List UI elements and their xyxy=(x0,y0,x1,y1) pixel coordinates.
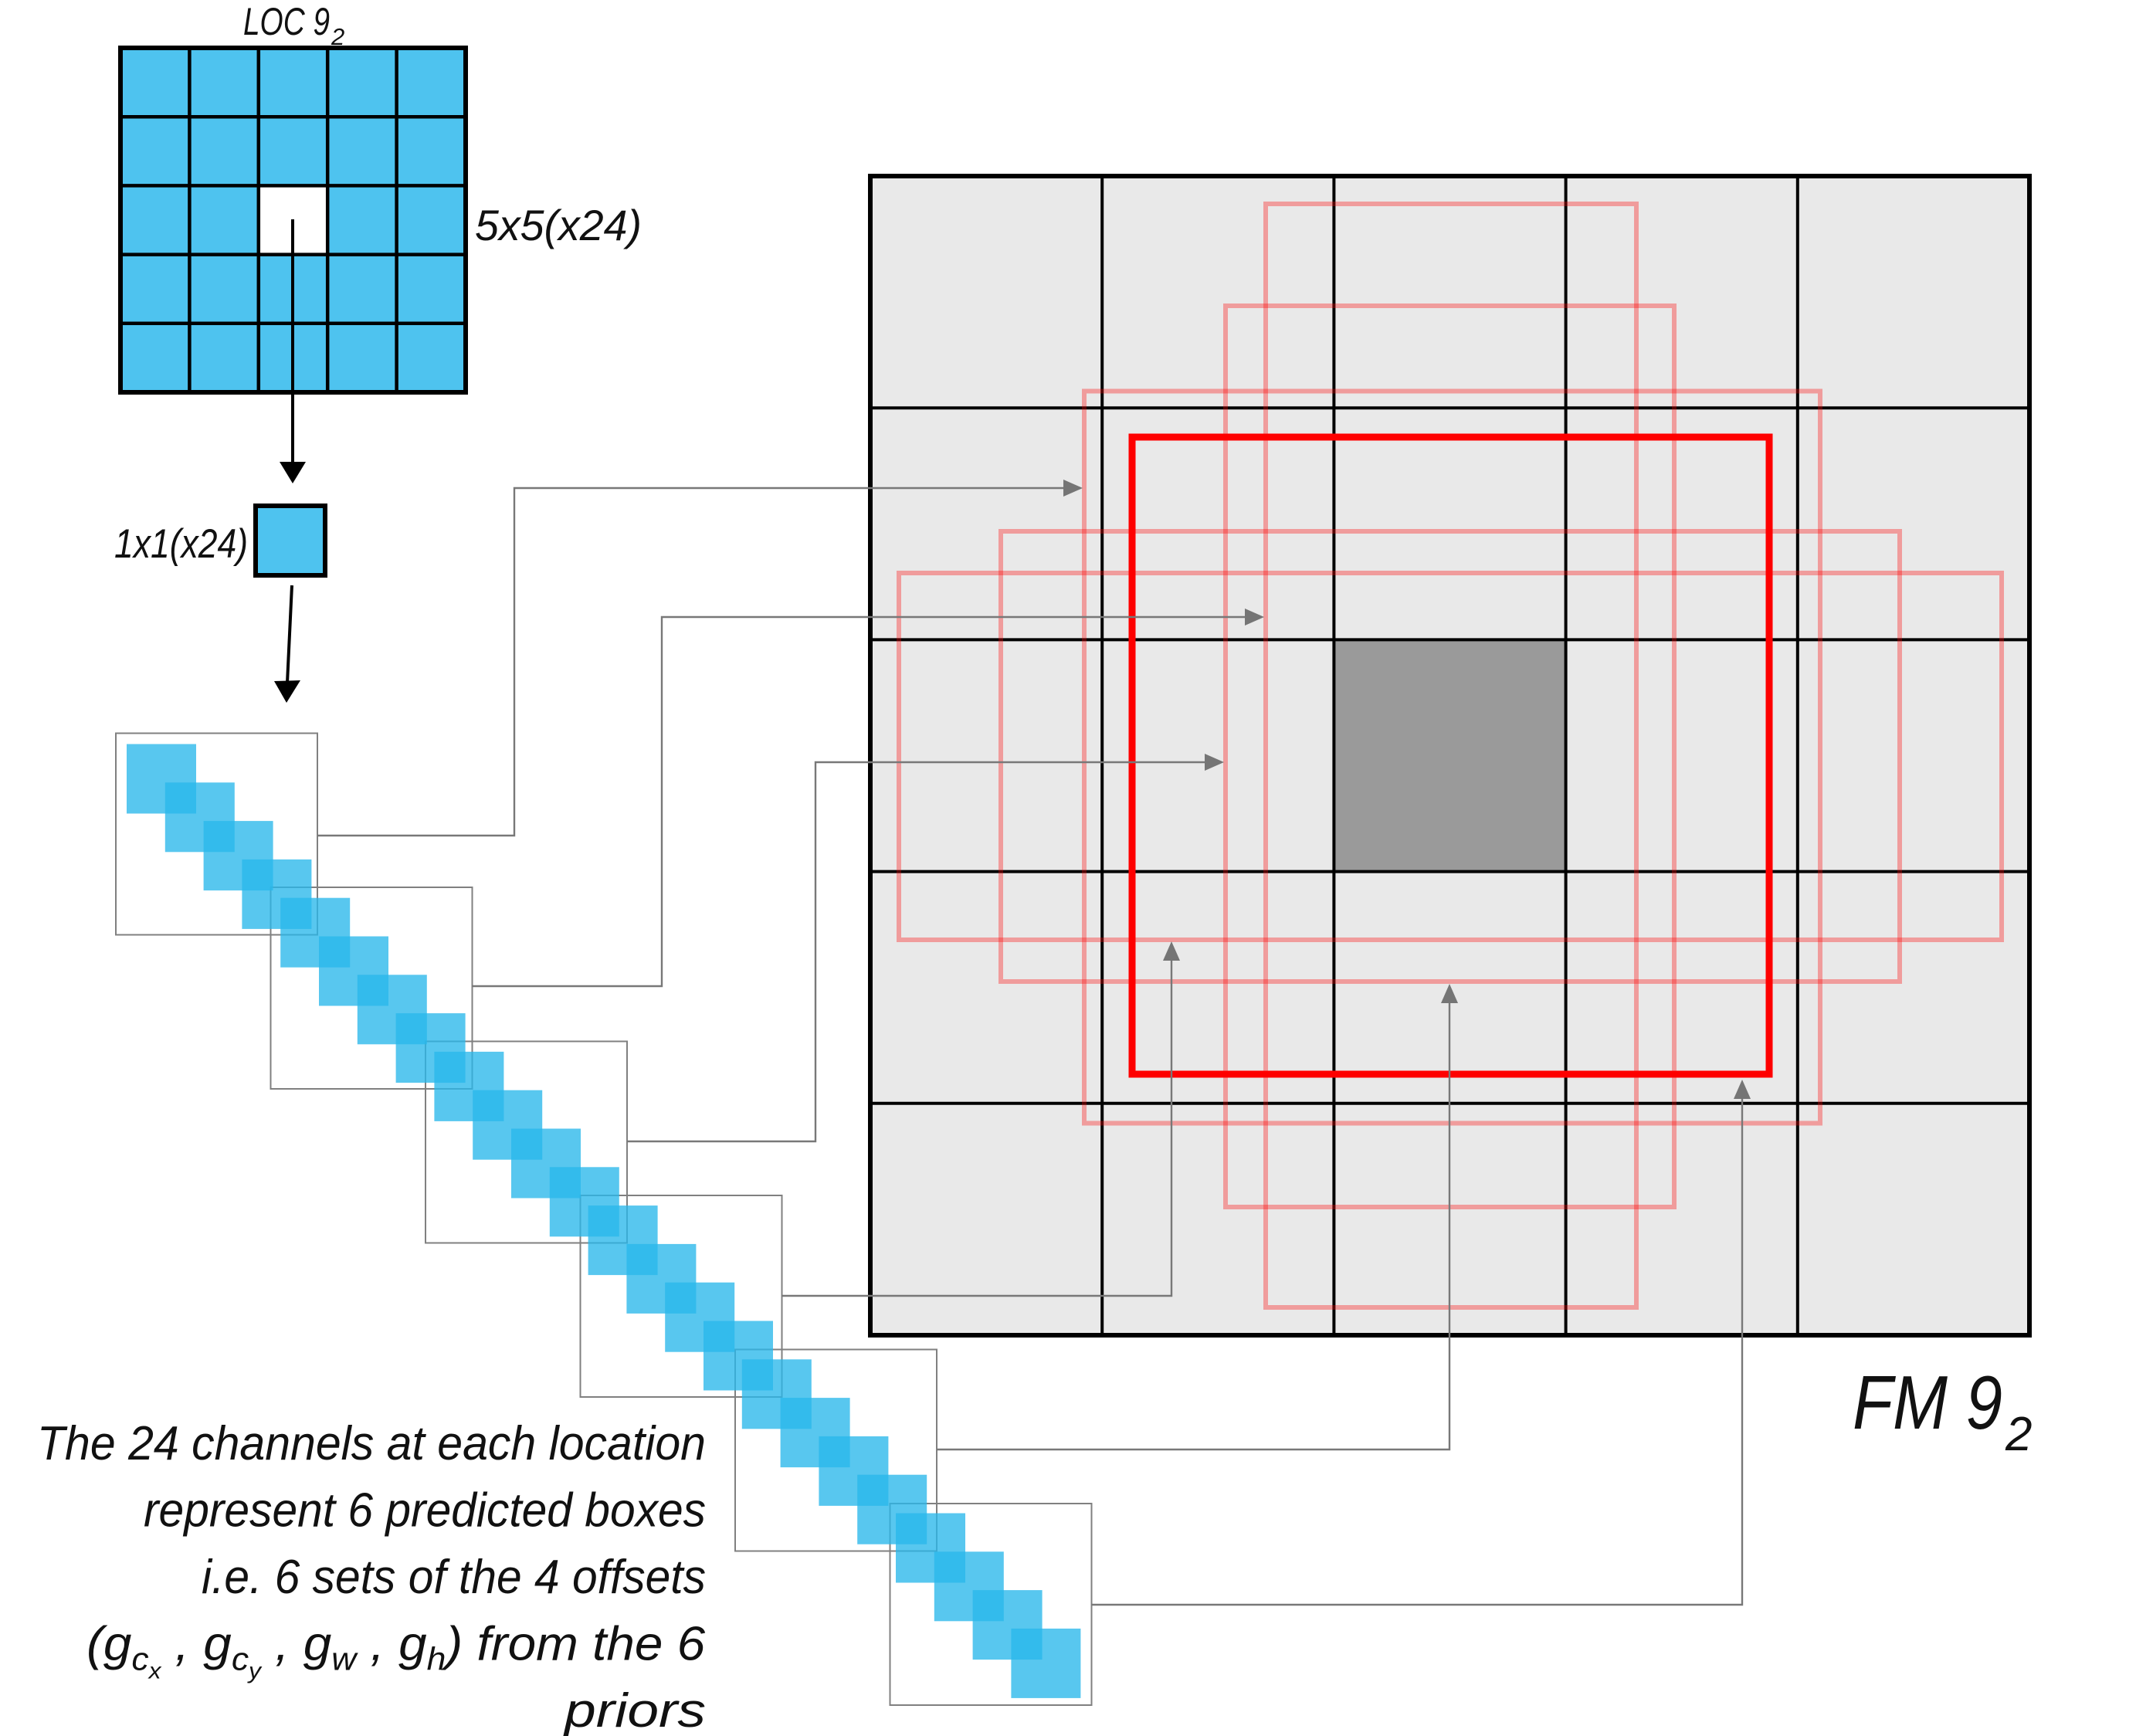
svg-text:represent 6 predicted boxes: represent 6 predicted boxes xyxy=(144,1484,706,1538)
svg-text:LOC 9: LOC 9 xyxy=(243,0,330,43)
svg-text:i.e. 6 sets of the 4 offsets: i.e. 6 sets of the 4 offsets xyxy=(202,1551,706,1604)
svg-text:FM 9: FM 9 xyxy=(1853,1360,2002,1445)
svg-text:2: 2 xyxy=(2005,1408,2032,1461)
svg-text:The 24 channels at each locati: The 24 channels at each location xyxy=(37,1417,706,1470)
svg-text:1x1(x24): 1x1(x24) xyxy=(114,521,248,567)
svg-text:2: 2 xyxy=(331,23,344,50)
svg-text:5x5(x24): 5x5(x24) xyxy=(475,201,642,249)
svg-text:priors: priors xyxy=(563,1684,706,1736)
